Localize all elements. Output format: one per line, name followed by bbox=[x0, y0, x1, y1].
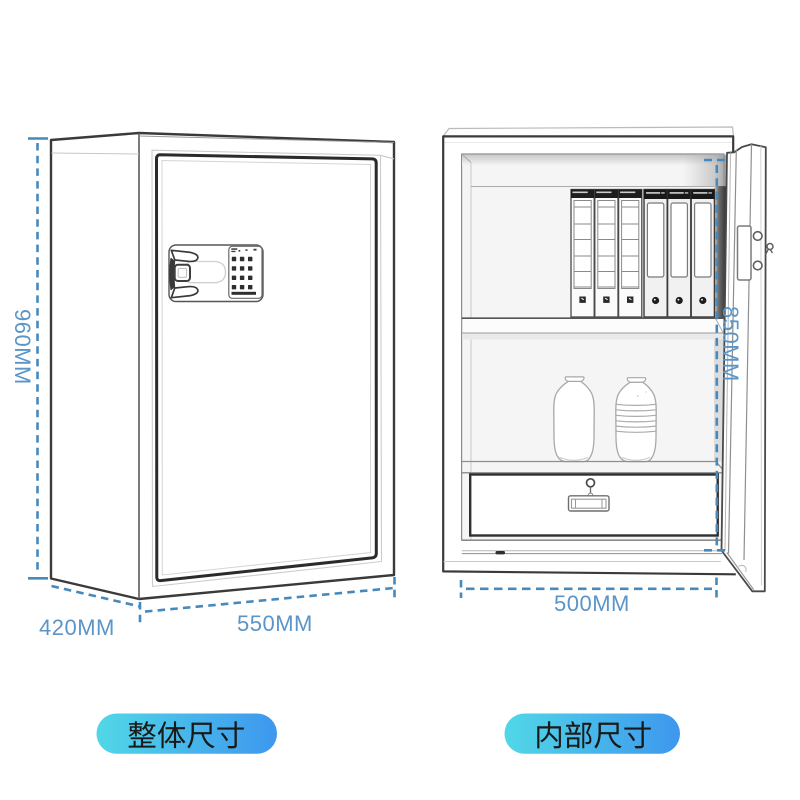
svg-text:960MM: 960MM bbox=[10, 309, 35, 385]
svg-text:550MM: 550MM bbox=[237, 611, 313, 636]
svg-text:500MM: 500MM bbox=[554, 591, 630, 616]
svg-text:420MM: 420MM bbox=[39, 615, 115, 640]
svg-text:850MM: 850MM bbox=[718, 306, 743, 382]
